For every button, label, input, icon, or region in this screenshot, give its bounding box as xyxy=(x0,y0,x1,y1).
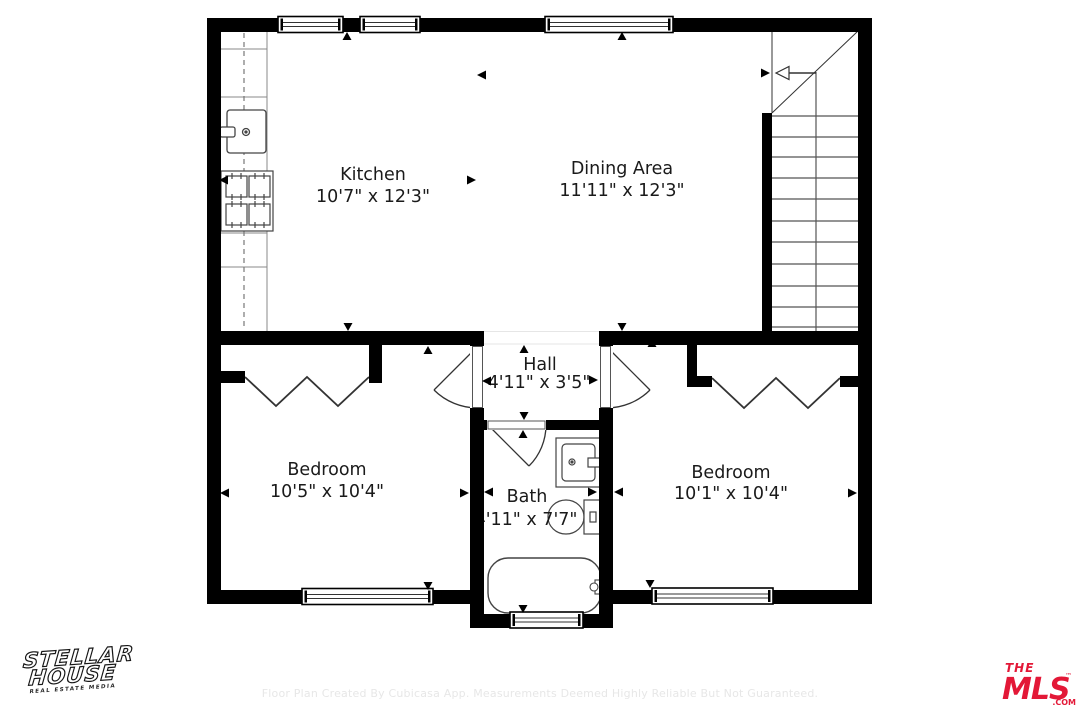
room-dimensions-bath: 4'11" x 7'7" xyxy=(475,510,578,530)
room-label-bath: Bath xyxy=(507,487,548,507)
window xyxy=(652,588,773,604)
windows xyxy=(278,17,773,629)
room-dimensions-bedroom-right: 10'1" x 10'4" xyxy=(674,484,788,504)
disclaimer-text: Floor Plan Created By Cubicasa App. Meas… xyxy=(0,687,1080,700)
closet-doors-right xyxy=(712,378,840,408)
bathtub xyxy=(488,558,604,613)
kitchen-sink xyxy=(220,110,266,153)
staircase xyxy=(772,31,858,331)
room-label-dining-area: Dining Area xyxy=(571,159,673,179)
door-bedroom-right xyxy=(599,346,613,408)
window xyxy=(545,17,673,33)
stove xyxy=(221,171,273,231)
door-bath xyxy=(487,420,546,430)
door-swing-bath xyxy=(488,425,546,466)
window xyxy=(302,589,433,605)
room-dimensions-dining-area: 11'11" x 12'3" xyxy=(559,181,684,201)
room-dimensions-kitchen: 10'7" x 12'3" xyxy=(316,187,430,207)
floorplan-canvas: Kitchen 10'7" x 12'3" Dining Area 11'11"… xyxy=(0,0,1080,720)
closet-doors-left xyxy=(245,377,369,406)
hall-passage-opening xyxy=(484,330,599,346)
window xyxy=(278,17,343,33)
window xyxy=(360,17,420,33)
room-label-kitchen: Kitchen xyxy=(340,165,406,185)
door-bedroom-left xyxy=(470,346,484,408)
mls-logo-trademark: ™ xyxy=(1065,673,1072,680)
room-label-hall: Hall xyxy=(523,355,557,375)
room-label-bedroom-right: Bedroom xyxy=(691,463,770,483)
room-label-bedroom-left: Bedroom xyxy=(287,460,366,480)
window xyxy=(510,612,583,628)
room-dimensions-bedroom-left: 10'5" x 10'4" xyxy=(270,482,384,502)
bath-sink xyxy=(556,438,600,487)
stairs-direction-arrowhead xyxy=(776,67,789,80)
room-dimensions-hall: 4'11" x 3'5" xyxy=(488,373,591,393)
mls-logo-com: .COM xyxy=(1052,699,1076,707)
floorplan-drawing: Kitchen 10'7" x 12'3" Dining Area 11'11"… xyxy=(0,0,1080,720)
